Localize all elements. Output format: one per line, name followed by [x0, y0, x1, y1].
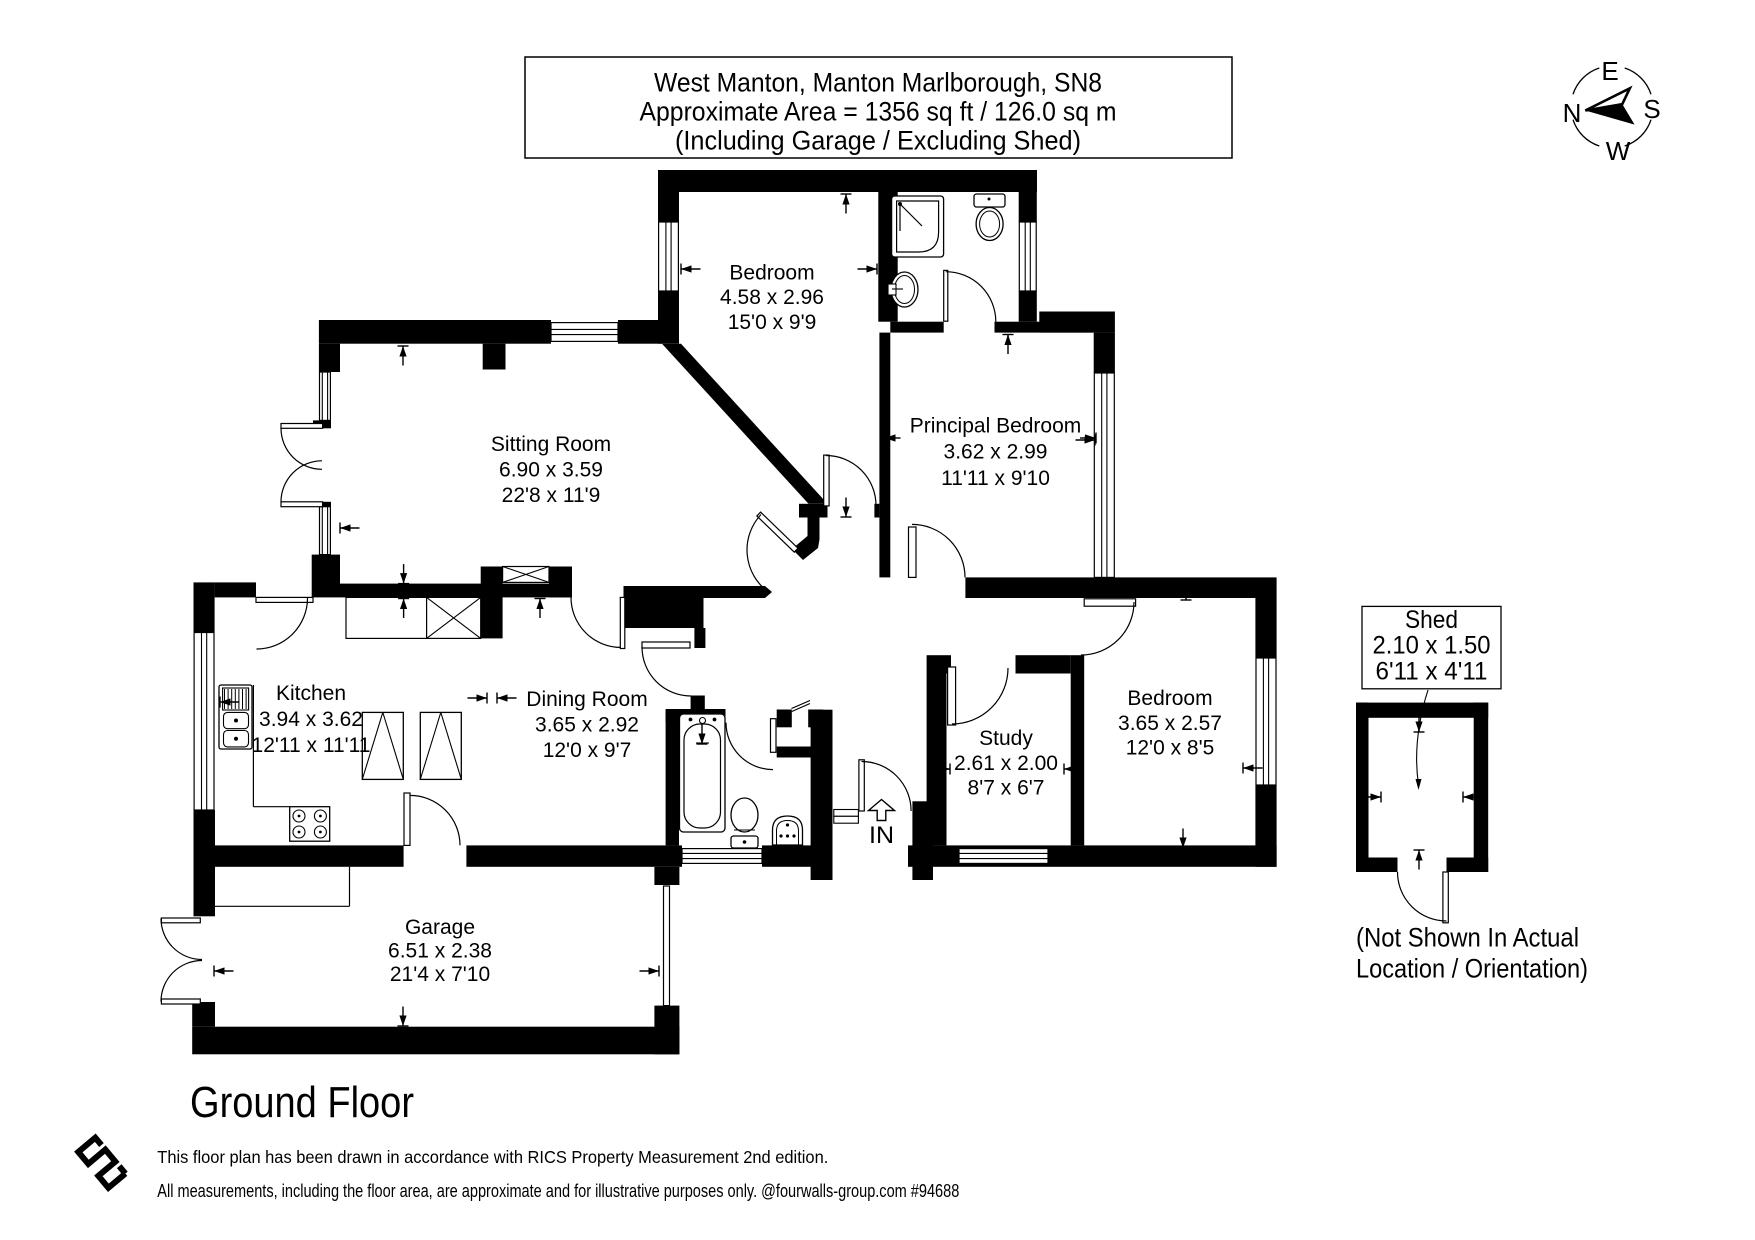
svg-text:(Not Shown In Actual: (Not Shown In Actual — [1356, 923, 1579, 953]
svg-text:S: S — [1643, 94, 1660, 124]
svg-text:3.65 x 2.92: 3.65 x 2.92 — [535, 714, 639, 737]
svg-text:Location / Orientation): Location / Orientation) — [1356, 954, 1588, 984]
svg-text:Ground Floor: Ground Floor — [190, 1079, 414, 1127]
svg-text:Bedroom: Bedroom — [1127, 687, 1212, 710]
svg-text:Principal Bedroom: Principal Bedroom — [910, 415, 1082, 438]
svg-text:West Manton, Manton Marlboroug: West Manton, Manton Marlborough, SN8 — [654, 68, 1102, 98]
svg-text:Garage: Garage — [405, 916, 475, 939]
svg-text:6.90 x 3.59: 6.90 x 3.59 — [499, 459, 603, 482]
svg-text:22'8 x 11'9: 22'8 x 11'9 — [502, 484, 601, 507]
svg-text:N: N — [1563, 98, 1582, 128]
svg-text:3.65 x 2.57: 3.65 x 2.57 — [1118, 712, 1222, 735]
svg-text:IN: IN — [869, 822, 894, 849]
svg-text:4.58 x 2.96: 4.58 x 2.96 — [720, 286, 824, 309]
svg-text:Bedroom: Bedroom — [729, 261, 814, 284]
svg-text:15'0 x 9'9: 15'0 x 9'9 — [728, 311, 817, 334]
svg-text:12'0 x 9'7: 12'0 x 9'7 — [543, 739, 632, 762]
svg-text:Kitchen: Kitchen — [276, 682, 346, 705]
svg-text:8'7 x 6'7: 8'7 x 6'7 — [968, 777, 1045, 800]
svg-text:Sitting Room: Sitting Room — [491, 433, 611, 456]
svg-text:21'4 x 7'10: 21'4 x 7'10 — [390, 963, 490, 986]
svg-text:(Including Garage / Excluding: (Including Garage / Excluding Shed) — [675, 126, 1081, 156]
svg-text:Study: Study — [979, 727, 1033, 750]
svg-text:12'0 x 8'5: 12'0 x 8'5 — [1126, 737, 1215, 760]
svg-text:2.61 x 2.00: 2.61 x 2.00 — [954, 752, 1058, 775]
svg-text:Dining Room: Dining Room — [526, 688, 647, 711]
svg-text:W: W — [1606, 136, 1631, 166]
svg-text:12'11 x 11'11: 12'11 x 11'11 — [252, 734, 371, 757]
svg-text:11'11 x 9'10: 11'11 x 9'10 — [941, 467, 1050, 490]
svg-text:Shed: Shed — [1405, 606, 1458, 634]
svg-text:3.62 x 2.99: 3.62 x 2.99 — [944, 441, 1048, 464]
svg-text:All measurements, including th: All measurements, including the floor ar… — [157, 1180, 959, 1201]
svg-text:6.51 x 2.38: 6.51 x 2.38 — [388, 940, 492, 963]
svg-text:E: E — [1601, 56, 1618, 86]
svg-text:6'11 x 4'11: 6'11 x 4'11 — [1376, 658, 1488, 686]
svg-text:3.94 x 3.62: 3.94 x 3.62 — [259, 708, 363, 731]
svg-text:This floor plan has been drawn: This floor plan has been drawn in accord… — [157, 1147, 828, 1167]
svg-text:Approximate Area = 1356 sq ft: Approximate Area = 1356 sq ft / 126.0 sq… — [640, 97, 1117, 127]
svg-text:2.10 x 1.50: 2.10 x 1.50 — [1373, 632, 1491, 660]
